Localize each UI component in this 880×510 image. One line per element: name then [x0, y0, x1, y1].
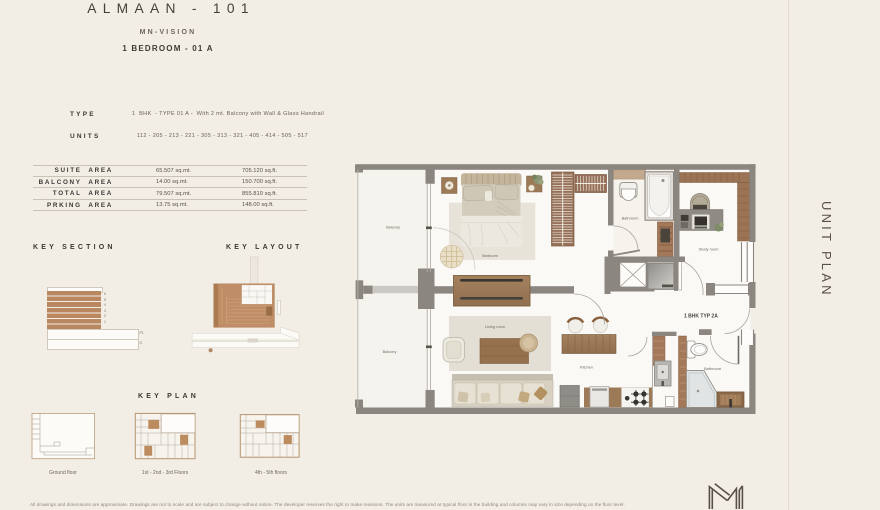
svg-text:Balcony: Balcony	[383, 349, 397, 354]
svg-text:1 BHK TYP 2A: 1 BHK TYP 2A	[684, 314, 718, 320]
svg-text:Study room: Study room	[699, 247, 719, 252]
svg-text:Kitchen: Kitchen	[580, 365, 593, 370]
svg-text:Living room: Living room	[485, 324, 505, 329]
svg-text:Bathroom: Bathroom	[704, 366, 721, 371]
svg-text:Bathroom: Bathroom	[622, 216, 639, 221]
svg-text:Balcony: Balcony	[386, 225, 400, 230]
svg-text:Bedroom: Bedroom	[482, 253, 498, 258]
